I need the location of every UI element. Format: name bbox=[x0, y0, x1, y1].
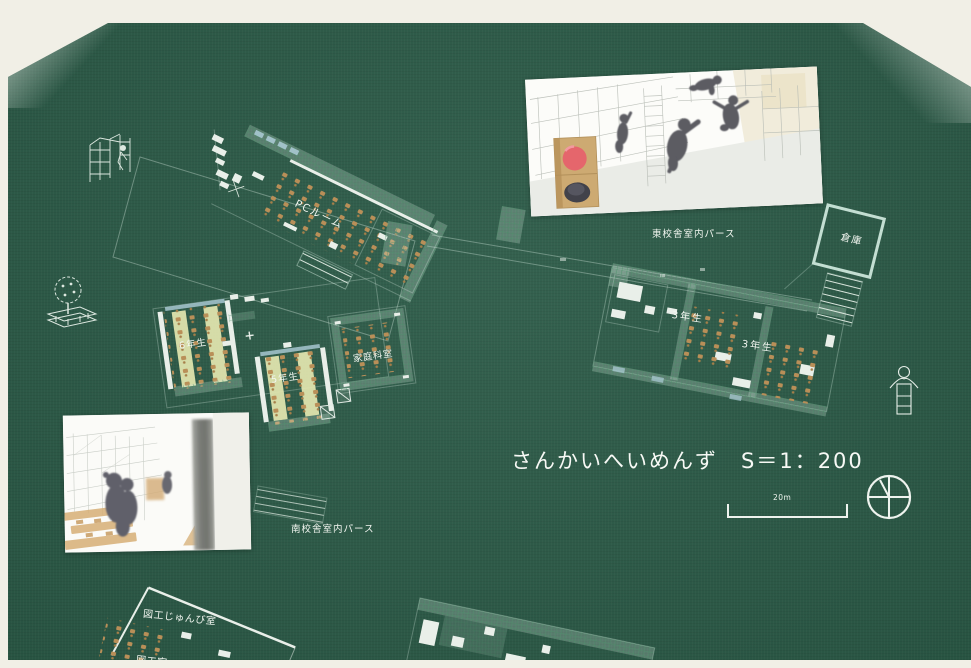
east-perspective-scene bbox=[525, 66, 823, 216]
north-symbol bbox=[868, 476, 910, 518]
scanned-presentation-board: { "title": { "text": "さんかいへいめんず S＝1：200"… bbox=[0, 0, 971, 668]
backpack-cubby bbox=[554, 137, 599, 209]
floor-plan-drawing bbox=[8, 23, 971, 660]
inset-south-perspective-image bbox=[63, 412, 251, 552]
scale-bar: 20m bbox=[727, 504, 848, 518]
tree-sketch bbox=[48, 277, 96, 327]
scale-bar-label: 20m bbox=[773, 493, 791, 502]
caption-south-perspective: 南校舎室内パース bbox=[291, 521, 375, 535]
board-content-layer: 東校舎室内パース 南校舎室内パース PCルーム 家庭科室 6年生 5年生 3年生… bbox=[8, 23, 971, 660]
east-building-plan bbox=[592, 263, 847, 417]
climbing-frame-sketch bbox=[90, 134, 130, 182]
caption-east-perspective: 東校舎室内パース bbox=[652, 226, 736, 240]
green-drawing-board: 東校舎室内パース 南校舎室内パース PCルーム 家庭科室 6年生 5年生 3年生… bbox=[8, 23, 971, 660]
south-perspective-scene bbox=[63, 412, 251, 552]
vaulting-figure-sketch bbox=[890, 367, 918, 415]
page-title: さんかいへいめんず S＝1：200 bbox=[511, 445, 864, 475]
inset-east-perspective-image bbox=[525, 66, 823, 216]
bottom-building-plan bbox=[405, 598, 654, 660]
foreground-column bbox=[192, 419, 215, 550]
